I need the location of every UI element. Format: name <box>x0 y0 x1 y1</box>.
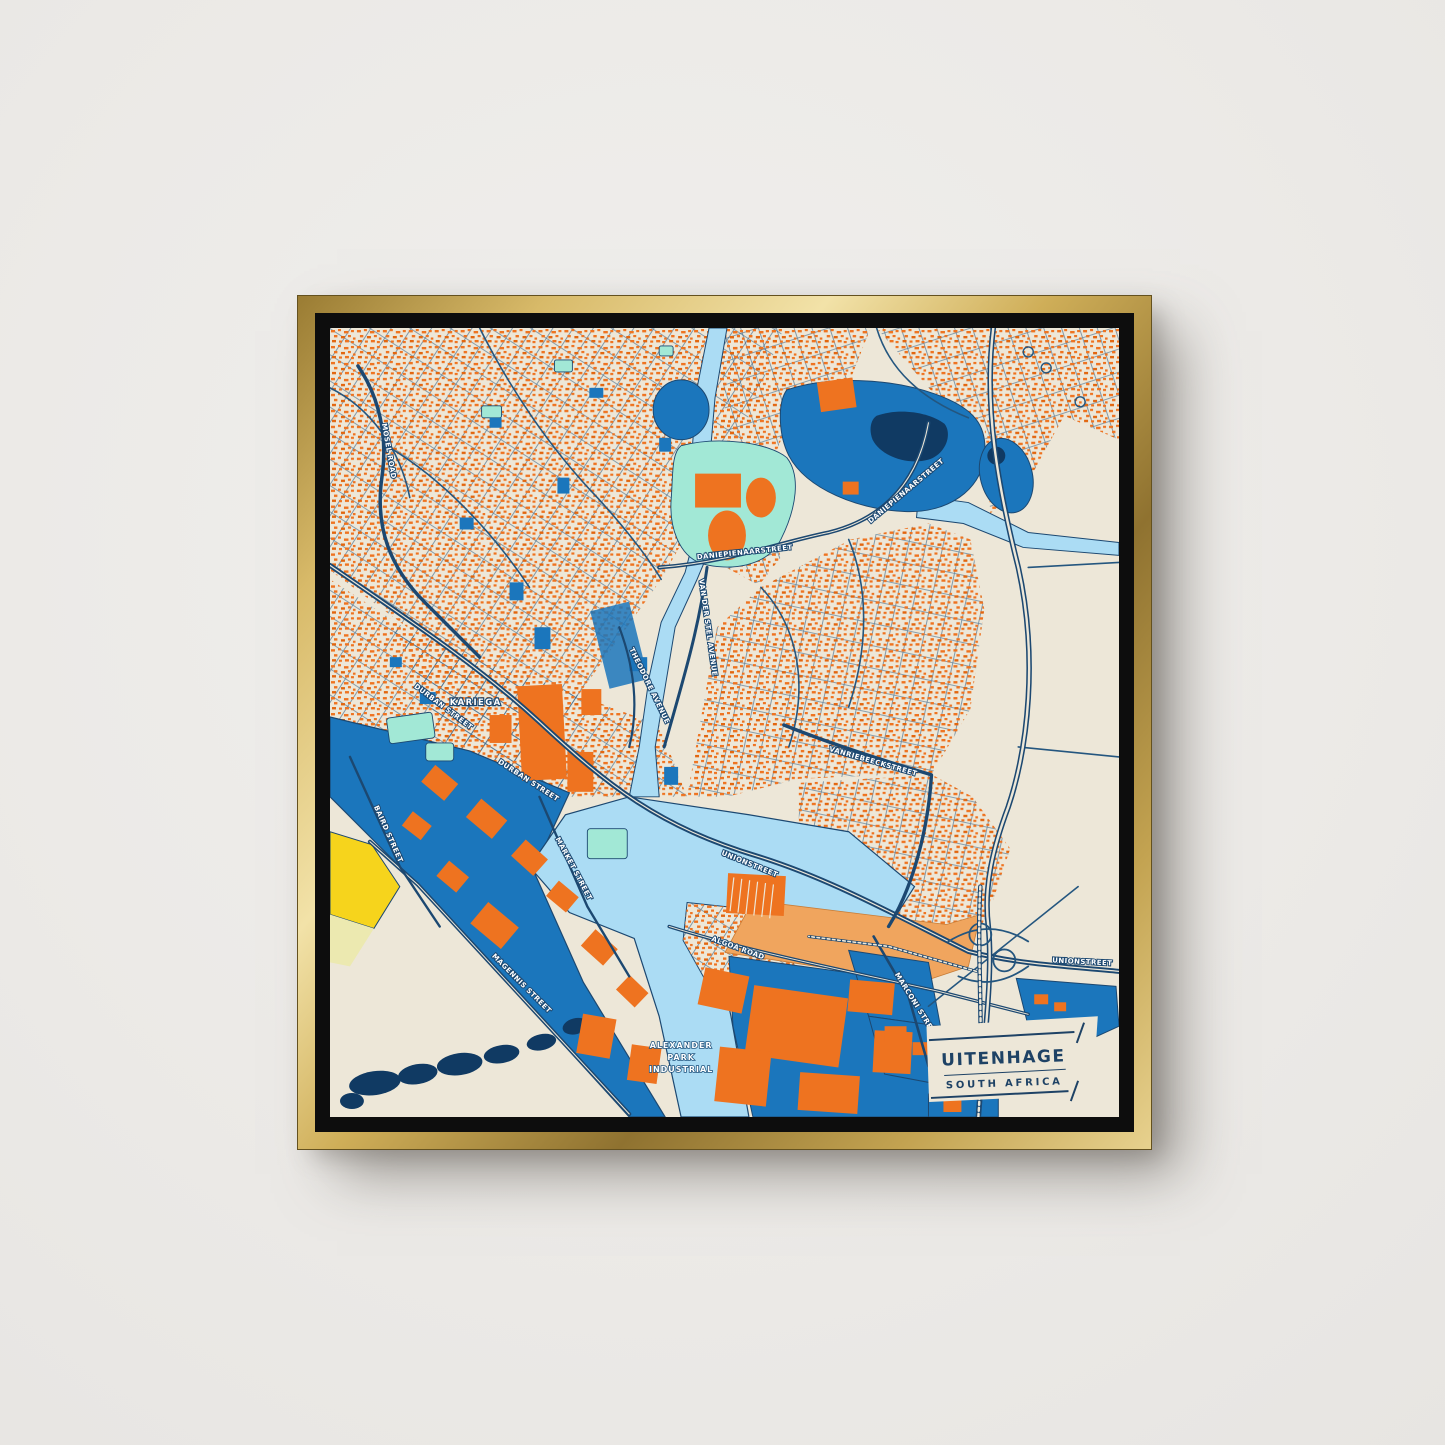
area-label-line1: ALEXANDER <box>650 1041 713 1050</box>
factory-striped <box>726 873 786 918</box>
town-label-kariega: KARIEGA <box>450 697 502 707</box>
wall-background: MOSEL ROAD DURBAN STREET DURBAN STREET B… <box>0 0 1445 1445</box>
frame-float-gap: MOSEL ROAD DURBAN STREET DURBAN STREET B… <box>315 313 1134 1132</box>
city-map-artwork: MOSEL ROAD DURBAN STREET DURBAN STREET B… <box>330 328 1119 1117</box>
area-label-line3: INDUSTRIAL <box>649 1065 713 1074</box>
area-label-line2: PARK <box>667 1053 695 1062</box>
map-canvas: MOSEL ROAD DURBAN STREET DURBAN STREET B… <box>330 328 1119 1117</box>
gold-picture-frame: MOSEL ROAD DURBAN STREET DURBAN STREET B… <box>297 295 1152 1150</box>
title-block: UITENHAGE SOUTH AFRICA <box>926 1016 1100 1106</box>
